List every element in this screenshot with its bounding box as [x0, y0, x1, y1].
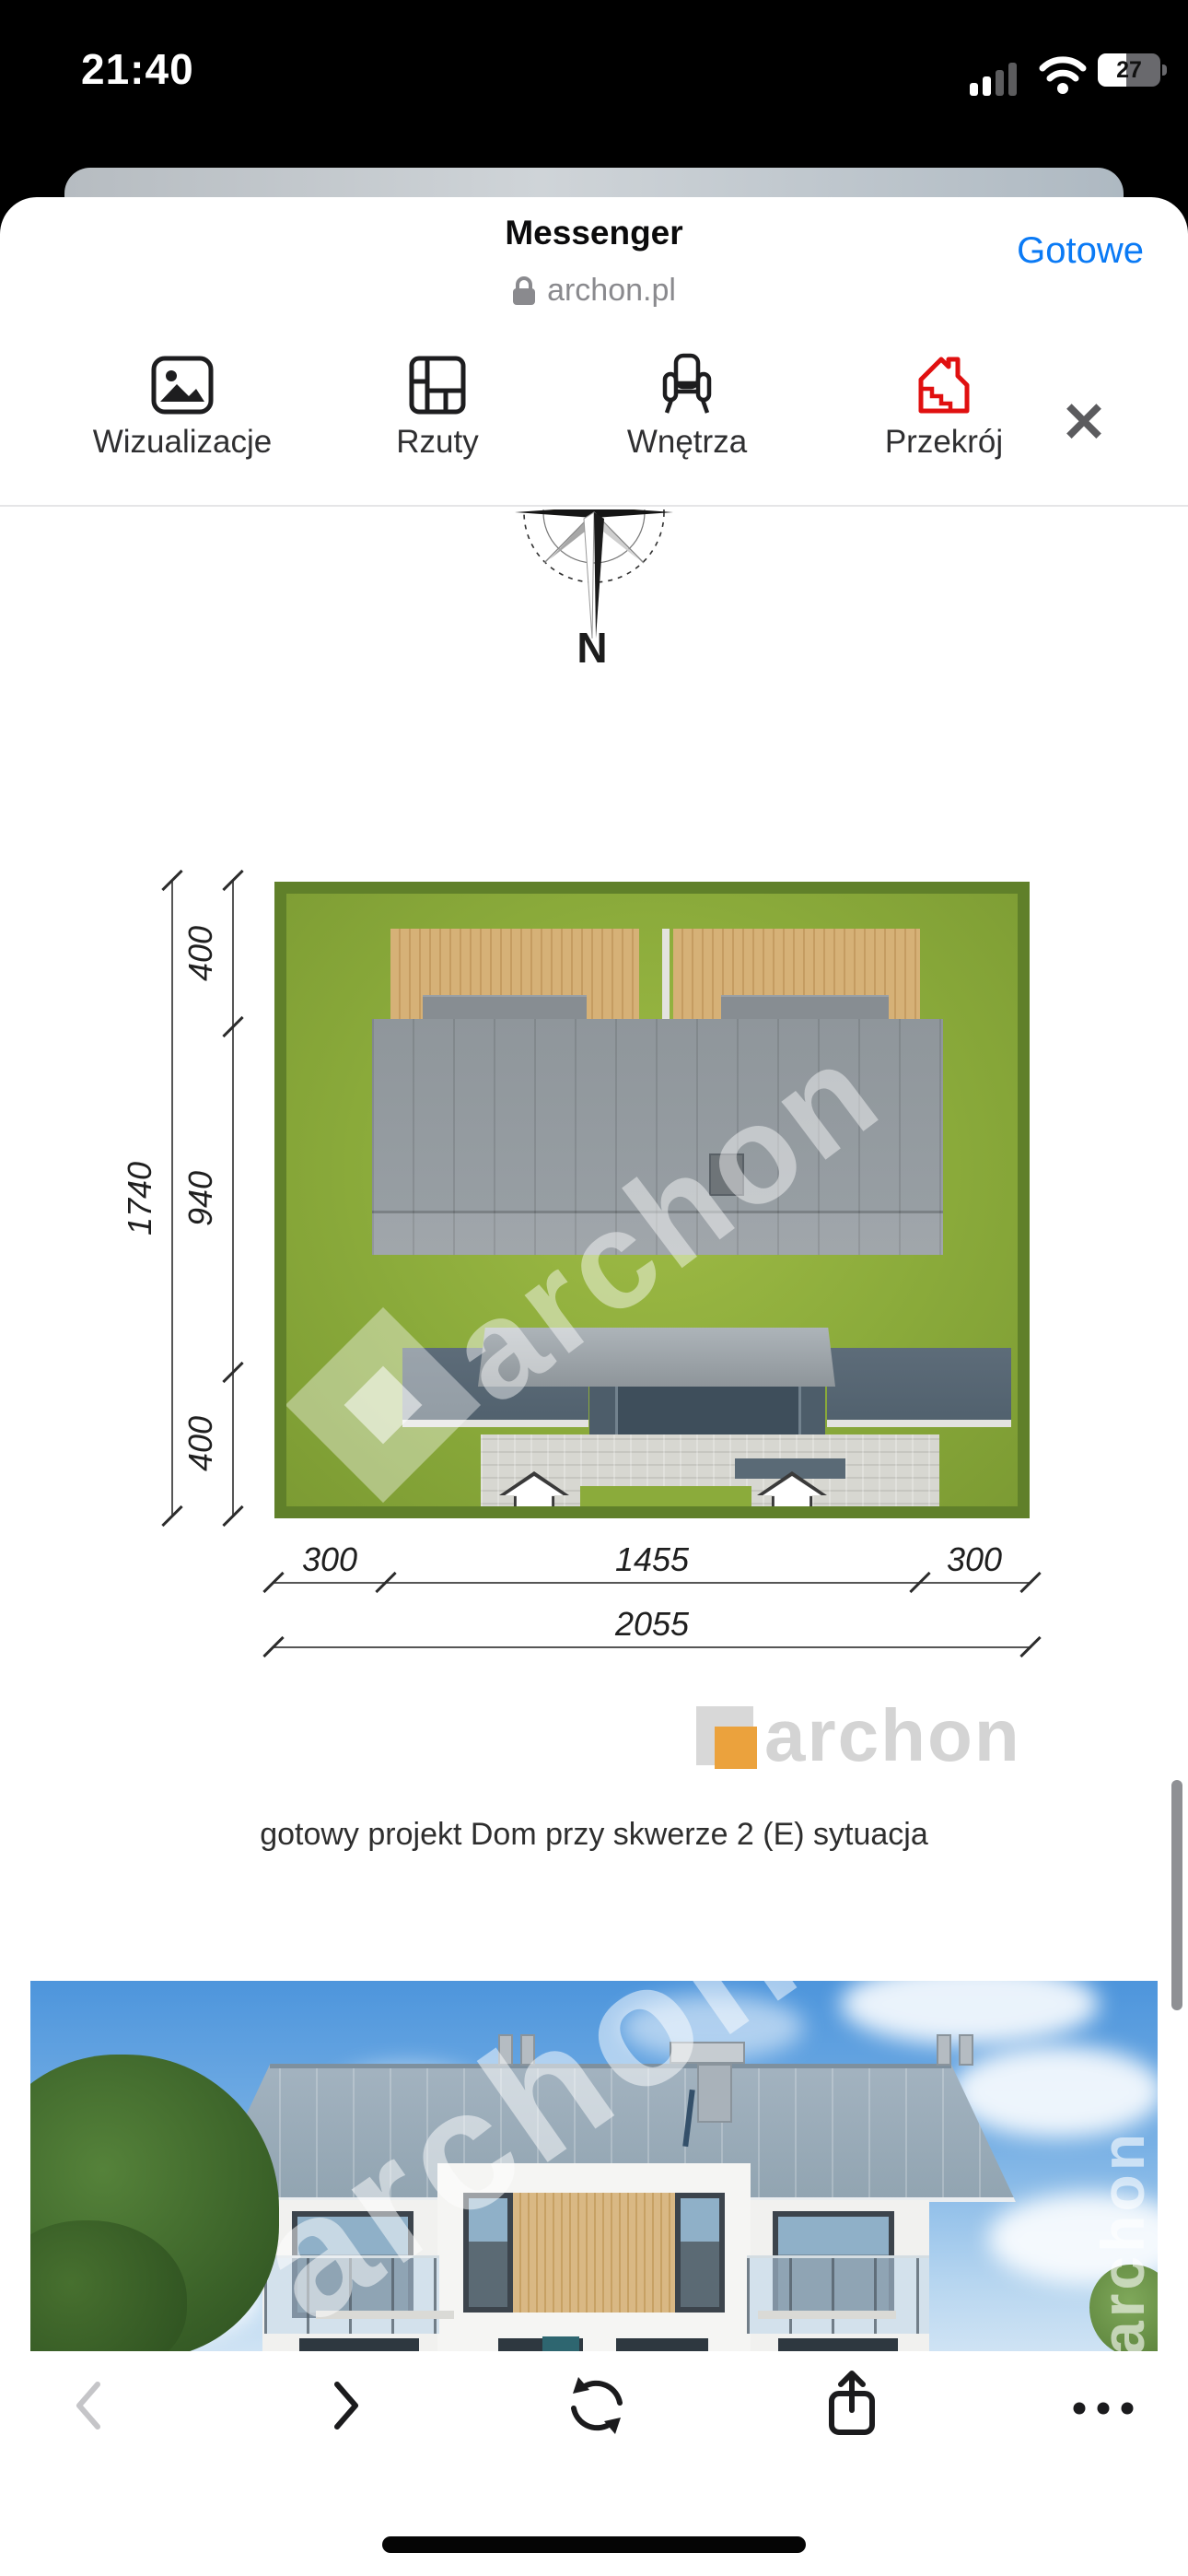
tab-label: Przekrój: [824, 424, 1064, 461]
wifi-icon: [1039, 53, 1087, 96]
status-time: 21:40: [81, 44, 194, 94]
tab-przekroj[interactable]: Przekrój: [824, 352, 1064, 461]
tab-wizualizacje[interactable]: Wizualizacje: [63, 352, 302, 461]
dim-bottom-seg2: 1455: [597, 1540, 707, 1579]
image-caption: gotowy projekt Dom przy skwerze 2 (E) sy…: [0, 1817, 1188, 1853]
more-button[interactable]: [1070, 2401, 1136, 2418]
dim-left-seg3: 400: [181, 1388, 220, 1499]
tab-rzuty[interactable]: Rzuty: [318, 352, 557, 461]
house-elevation-photo: archon archon: [30, 1981, 1158, 2351]
archon-logo-orange-square: [715, 1727, 757, 1769]
side-terrace-right: [827, 1348, 1011, 1422]
armchair-icon: [567, 352, 807, 416]
iphone-screen: 21:40 27 Messenger Gotowe archo: [0, 0, 1188, 2576]
forward-button[interactable]: [328, 2379, 365, 2435]
share-button[interactable]: [825, 2370, 879, 2441]
glass-balustrade-right: [747, 2255, 929, 2334]
site-plan-image: archon: [274, 882, 1030, 1518]
tab-label: Wnętrza: [567, 424, 807, 461]
tab-bar-divider: [0, 505, 1188, 507]
dim-line-total-left: [171, 880, 173, 1516]
dim-left-total: 1740: [121, 1143, 159, 1254]
dim-line-bottom-total: [273, 1646, 1031, 1648]
battery-percent: 27: [1098, 57, 1160, 84]
close-tabs-button[interactable]: ✕: [1042, 381, 1125, 464]
lock-icon: [512, 276, 536, 306]
dim-line-segments-left: [232, 880, 234, 1516]
gallery-icon: [63, 352, 302, 416]
battery-icon: 27: [1098, 53, 1160, 87]
compass-north-label: N: [551, 623, 634, 673]
lawn-notch: [580, 1486, 751, 1518]
house-section-icon: [824, 352, 1064, 416]
tab-wnetrza[interactable]: Wnętrza: [567, 352, 807, 461]
archon-logo-text: archon: [764, 1693, 1021, 1778]
dim-bottom-total: 2055: [597, 1605, 707, 1644]
dim-left-seg1: 400: [181, 898, 220, 1009]
status-bar: 21:40 27: [0, 0, 1188, 166]
dim-bottom-seg1: 300: [274, 1540, 385, 1579]
cellular-signal-icon: [970, 57, 1027, 96]
scrollbar-thumb[interactable]: [1171, 1780, 1182, 2010]
done-button[interactable]: Gotowe: [1017, 230, 1144, 272]
tab-label: Wizualizacje: [63, 424, 302, 461]
browser-title: Messenger: [0, 214, 1188, 252]
site-host: archon.pl: [547, 273, 676, 309]
back-button[interactable]: [70, 2379, 107, 2435]
photo-watermark-vertical: archon: [1088, 2088, 1158, 2351]
site-host-row: archon.pl: [0, 273, 1188, 309]
tab-label: Rzuty: [318, 424, 557, 461]
floorplan-icon: [318, 352, 557, 416]
dim-bottom-seg3: 300: [919, 1540, 1030, 1579]
refresh-button[interactable]: [565, 2375, 628, 2439]
dim-left-seg2: 940: [181, 1143, 220, 1254]
home-indicator[interactable]: [382, 2536, 806, 2553]
in-app-browser-sheet: Messenger Gotowe archon.pl Wizualizacje: [0, 197, 1188, 2576]
